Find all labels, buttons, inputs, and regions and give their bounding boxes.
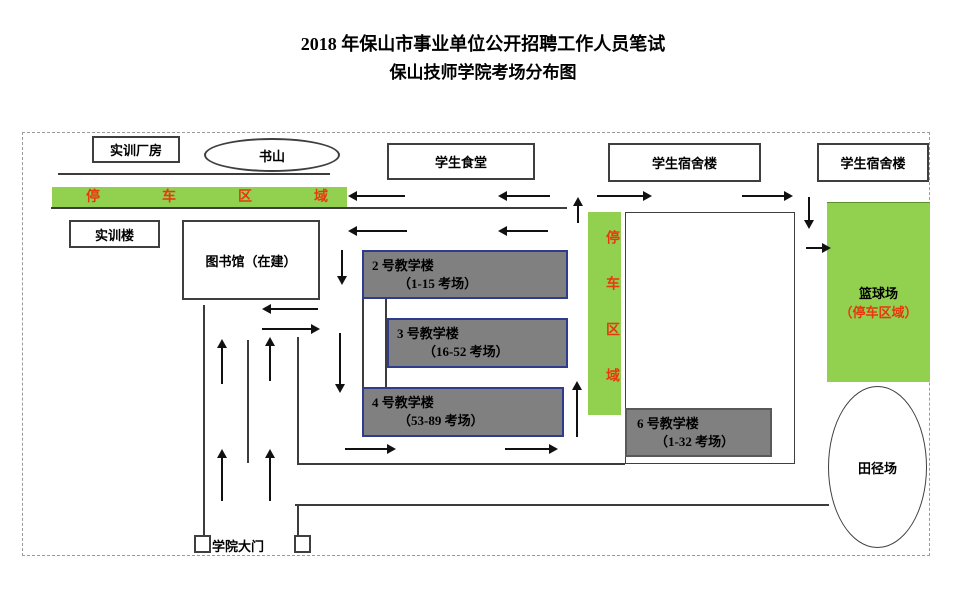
road-line (297, 337, 299, 465)
flow-arrow-shaft (355, 230, 407, 232)
road-line (385, 299, 387, 387)
road-line (58, 173, 330, 175)
flow-arrow-head (348, 191, 357, 201)
flow-arrow-head (217, 449, 227, 458)
road-line (295, 504, 829, 506)
flow-arrow-shaft (269, 308, 318, 310)
flow-arrow-head (498, 226, 507, 236)
flow-arrow-head (387, 444, 396, 454)
road-line (51, 207, 567, 209)
flow-arrow-shaft (345, 448, 389, 450)
flow-arrow-head (337, 276, 347, 285)
flow-arrow-shaft (221, 346, 223, 384)
flow-arrow-shaft (355, 195, 405, 197)
flow-arrow-head (572, 381, 582, 390)
road-line (247, 340, 249, 463)
flow-arrow-head (822, 243, 831, 253)
flow-arrow-head (217, 339, 227, 348)
flow-arrow-shaft (742, 195, 786, 197)
road-line (362, 299, 364, 387)
road-line (297, 505, 299, 535)
flow-arrow-shaft (597, 195, 645, 197)
flow-arrow-shaft (341, 250, 343, 278)
flow-arrow-shaft (221, 456, 223, 501)
flow-arrow-head (311, 324, 320, 334)
road-line (203, 305, 205, 535)
flow-arrow-head (784, 191, 793, 201)
flow-arrow-shaft (339, 333, 341, 386)
road-line (298, 463, 625, 465)
flow-arrow-head (348, 226, 357, 236)
flow-arrow-head (643, 191, 652, 201)
flow-arrow-head (804, 220, 814, 229)
flow-arrow-head (265, 337, 275, 346)
flow-arrow-head (265, 449, 275, 458)
flow-arrow-head (498, 191, 507, 201)
flow-arrow-shaft (505, 230, 548, 232)
flow-arrow-shaft (577, 204, 579, 223)
flow-arrow-head (335, 384, 345, 393)
flow-arrow-head (573, 197, 583, 206)
roads-and-arrows-layer (0, 0, 966, 599)
flow-arrow-shaft (505, 448, 551, 450)
exam-map-page: 2018 年保山市事业单位公开招聘工作人员笔试 保山技师学院考场分布图 实训厂房… (0, 0, 966, 599)
flow-arrow-shaft (269, 456, 271, 501)
flow-arrow-shaft (808, 197, 810, 222)
flow-arrow-shaft (262, 328, 313, 330)
flow-arrow-head (262, 304, 271, 314)
flow-arrow-shaft (576, 388, 578, 437)
flow-arrow-shaft (269, 344, 271, 381)
flow-arrow-head (549, 444, 558, 454)
flow-arrow-shaft (505, 195, 550, 197)
